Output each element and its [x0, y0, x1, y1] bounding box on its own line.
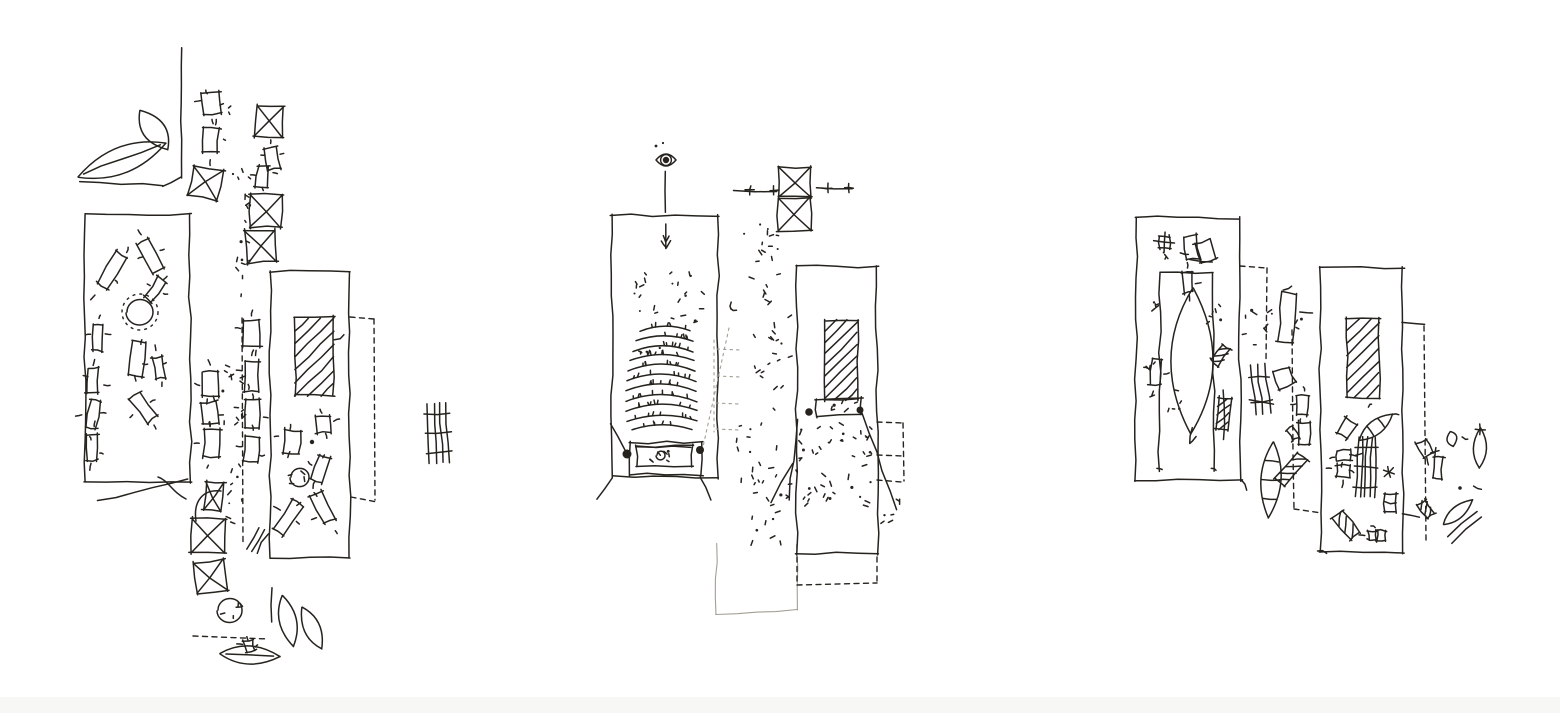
people-scatter	[1207, 304, 1223, 324]
beam-line	[862, 413, 897, 510]
tick	[334, 335, 344, 340]
boat	[1440, 495, 1477, 529]
table	[312, 407, 342, 440]
annotation-dashed-box	[877, 455, 903, 456]
site-edge-line	[271, 588, 272, 622]
seating-row	[627, 370, 696, 381]
crowd-scatter	[736, 423, 782, 501]
buoy	[1446, 431, 1459, 448]
tick	[1283, 286, 1291, 290]
trellis-grid	[423, 402, 453, 464]
pencil-guide	[716, 403, 740, 404]
beam-line	[700, 477, 711, 500]
dot	[655, 145, 658, 148]
sketch-panel-market-plaza	[73, 48, 453, 666]
dot	[310, 440, 314, 444]
table	[1272, 365, 1298, 391]
extension-dashed	[350, 317, 374, 319]
performer-marks	[831, 401, 857, 412]
star-marker	[1384, 467, 1395, 478]
small-box	[1414, 436, 1434, 459]
people-scatter	[1296, 318, 1303, 329]
tick	[1474, 486, 1482, 489]
crowd-scatter	[633, 272, 704, 323]
market-stall	[195, 360, 220, 402]
sketch-panel-boats-water	[1135, 216, 1488, 554]
table	[1182, 233, 1201, 262]
tree-leaf	[131, 104, 177, 156]
pencil-guide	[717, 349, 740, 350]
canopy-xbox	[253, 104, 286, 140]
guide-dashed	[1240, 266, 1267, 268]
canopy-xbox	[778, 166, 812, 199]
tick	[1368, 404, 1371, 407]
small-box	[1325, 463, 1354, 489]
pencil-guide	[715, 543, 717, 614]
survey-tick	[745, 186, 754, 195]
guide-line	[1402, 514, 1419, 518]
boat	[1355, 406, 1400, 446]
tick	[1462, 437, 1468, 440]
canopy-xbox	[193, 558, 229, 595]
pencil-guide	[716, 429, 739, 430]
stage-curtain-line	[637, 446, 691, 448]
small-box	[1297, 420, 1311, 445]
tick	[1385, 502, 1396, 504]
crowd-scatter	[754, 315, 793, 410]
tick	[1359, 535, 1365, 536]
leader-line	[611, 424, 626, 452]
tick	[1180, 253, 1188, 255]
annotation-dashed-box	[877, 480, 902, 482]
canopy-xbox	[201, 480, 226, 512]
pavilion-building	[269, 270, 351, 558]
stair-core-hatched	[1345, 317, 1380, 399]
site-edge-line	[181, 48, 182, 178]
dot	[662, 142, 664, 144]
tree-leaf	[295, 604, 329, 653]
people-scatter	[1163, 251, 1168, 259]
stair-core-hatched	[294, 315, 335, 396]
survey-tick	[770, 186, 779, 195]
tick	[1427, 458, 1429, 465]
table	[301, 488, 344, 541]
seating-row	[628, 360, 695, 371]
canopy-xbox	[189, 517, 228, 556]
guide-dashed	[1293, 455, 1294, 509]
table	[83, 359, 111, 395]
market-stall	[200, 398, 224, 427]
speaker-dot	[623, 450, 632, 459]
table	[120, 386, 169, 437]
speaker-dot	[696, 446, 704, 454]
survey-tick	[822, 183, 832, 193]
pond-lens	[1170, 288, 1215, 435]
rack-grid	[1353, 436, 1379, 497]
boat	[220, 644, 281, 665]
table	[272, 423, 302, 459]
pencil-guide	[717, 376, 741, 377]
canopy-xbox	[187, 163, 226, 202]
market-stall	[199, 118, 228, 167]
crowd-scatter	[743, 223, 780, 304]
stair-core-hatched	[824, 320, 859, 402]
guide-line	[1402, 322, 1425, 324]
market-stall	[235, 424, 266, 463]
seating-row	[640, 323, 690, 332]
round-table	[126, 300, 153, 325]
extension-dashed	[797, 583, 877, 585]
table	[148, 343, 171, 387]
people-scatter	[1264, 310, 1273, 332]
beam-line	[597, 478, 612, 499]
event-hall-building	[610, 214, 719, 479]
eye-icon	[656, 154, 676, 166]
tick	[1241, 480, 1247, 491]
seating-row	[626, 390, 697, 402]
table	[1276, 291, 1297, 345]
tree-stem	[80, 182, 163, 186]
table	[85, 314, 112, 353]
market-stall	[194, 89, 224, 125]
table	[1334, 415, 1359, 442]
tree-leaf	[73, 131, 170, 189]
annotation-dashed-box	[877, 422, 903, 423]
hand-drawn-site-sketches	[0, 0, 1560, 723]
guide-dashed	[1294, 509, 1322, 513]
canopy-xbox	[248, 193, 284, 230]
market-stall	[235, 350, 260, 399]
market-stall	[234, 310, 263, 357]
guide-dashed	[1266, 268, 1267, 362]
hatch-mark	[257, 534, 268, 554]
table	[126, 338, 150, 382]
small-box	[1432, 456, 1445, 481]
small-box	[1376, 530, 1387, 543]
guide-dashed	[1292, 330, 1293, 452]
stall-guide-dashed	[242, 318, 243, 543]
plaza-building	[1319, 267, 1405, 554]
table	[139, 270, 175, 308]
seating-row	[636, 332, 693, 341]
annotation-dashed-box	[903, 423, 904, 481]
dot	[1458, 486, 1462, 490]
market-stall	[193, 421, 223, 469]
market-stall	[258, 138, 287, 173]
canopy-xbox	[244, 227, 279, 265]
small-box	[1180, 261, 1203, 301]
tick	[731, 309, 737, 311]
hall-building	[84, 214, 192, 484]
table	[1142, 358, 1170, 397]
seating-row	[626, 380, 696, 392]
hatch-mark	[247, 528, 259, 549]
pencil-guide	[716, 610, 797, 615]
seating-row	[632, 421, 692, 430]
canopy-xbox	[776, 195, 812, 231]
bench-hatched	[1330, 509, 1362, 542]
sketch-panel-stage-event	[597, 142, 904, 615]
entry-arrow	[661, 224, 670, 249]
people-scatter	[1242, 309, 1257, 345]
seating-row	[626, 400, 697, 411]
guide-line	[1223, 390, 1225, 440]
people-scatter	[226, 464, 242, 523]
people-scatter	[1152, 301, 1159, 311]
sketch-sheet	[0, 0, 1560, 723]
survey-tick	[845, 184, 854, 193]
crowd-scatter	[881, 499, 900, 523]
speaker-dot	[805, 408, 813, 416]
rack-grid	[1247, 363, 1274, 415]
tick	[1371, 526, 1375, 528]
tick	[1300, 312, 1313, 313]
chair-ticks	[221, 602, 243, 618]
tree-stem	[163, 177, 181, 186]
extension-dashed	[374, 319, 375, 500]
people-scatter	[236, 240, 251, 296]
crowd-scatter	[751, 504, 781, 545]
people-scatter	[232, 169, 251, 223]
extension-dashed	[351, 497, 377, 502]
tree-leaf	[274, 594, 302, 648]
crowd-scatter	[799, 423, 872, 507]
seating-row	[627, 412, 697, 422]
tick	[1157, 468, 1162, 469]
table	[126, 223, 172, 277]
edge-dashed	[193, 636, 268, 639]
